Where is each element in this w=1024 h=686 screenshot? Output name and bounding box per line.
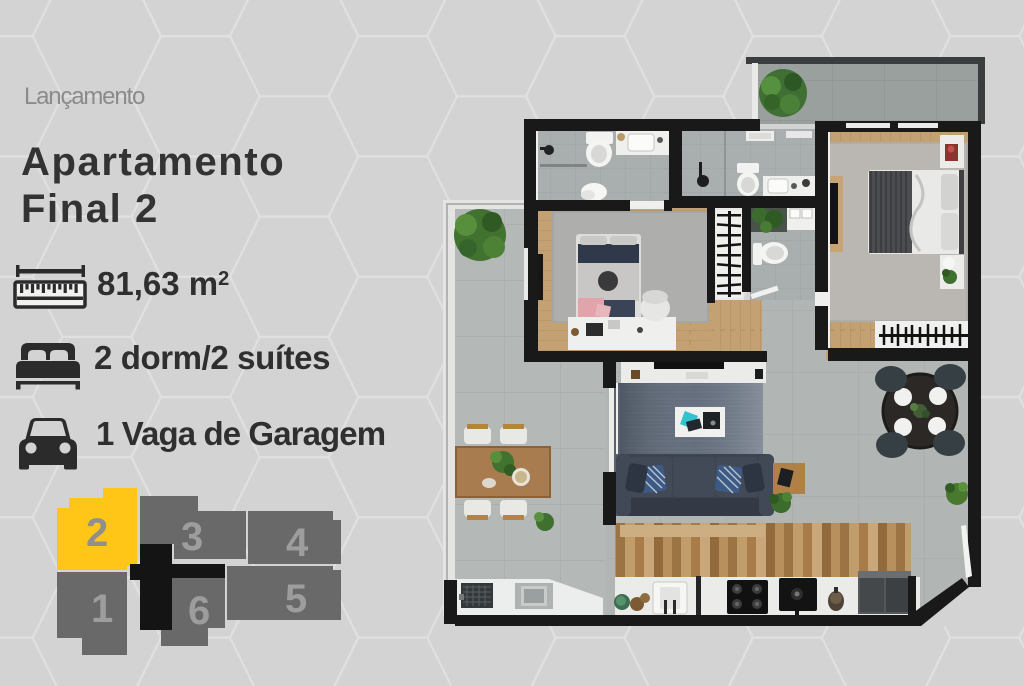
svg-text:5: 5 [285, 577, 307, 621]
svg-text:2: 2 [86, 511, 108, 555]
svg-text:4: 4 [286, 521, 309, 565]
svg-text:3: 3 [181, 515, 203, 559]
svg-text:6: 6 [188, 589, 210, 633]
svg-text:1: 1 [91, 587, 113, 631]
